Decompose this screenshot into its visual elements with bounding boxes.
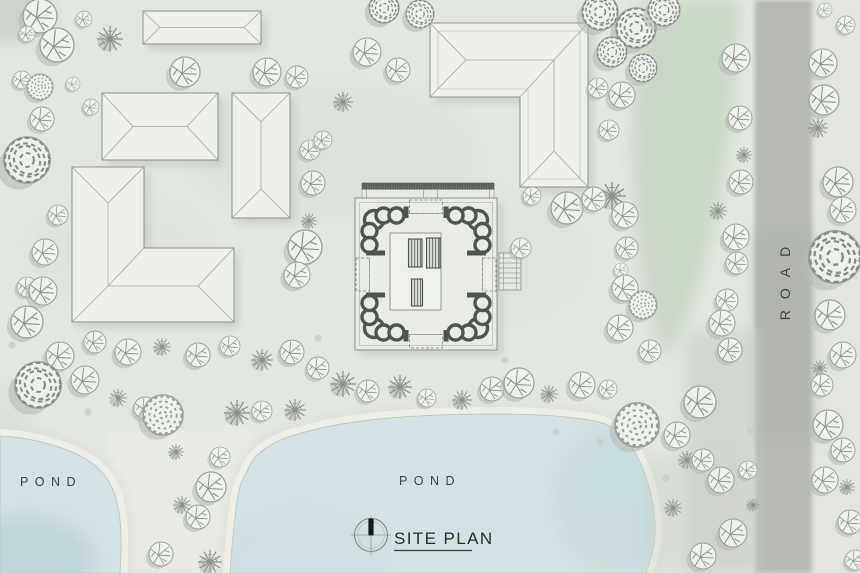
pebble-icon xyxy=(747,427,754,434)
building-north-small xyxy=(143,11,261,44)
pebble-icon xyxy=(597,439,604,446)
building-west-rect xyxy=(102,93,218,160)
pebble-icon xyxy=(9,342,16,349)
inner-room xyxy=(390,233,441,310)
pergola-band xyxy=(362,183,494,190)
site-plan-drawing: POND POND ROAD SITE PLAN xyxy=(0,0,860,573)
pebble-icon xyxy=(502,357,509,364)
road-label: ROAD xyxy=(777,236,793,320)
building-center-rect xyxy=(232,93,290,218)
pond-center-label: POND xyxy=(399,474,461,488)
pebble-icon xyxy=(315,335,322,342)
pebble-icon xyxy=(663,475,670,482)
pebble-icon xyxy=(553,429,560,436)
furniture-mat xyxy=(412,279,423,306)
pond-left-label: POND xyxy=(20,475,82,489)
page-title: SITE PLAN xyxy=(394,529,494,548)
pebble-icon xyxy=(110,397,117,404)
pebble-icon xyxy=(85,409,92,416)
pond-left xyxy=(0,436,121,573)
main-pavilion xyxy=(355,183,521,350)
furniture-mat xyxy=(409,239,423,267)
furniture-mat xyxy=(427,238,441,268)
site-plan-canvas: POND POND ROAD SITE PLAN xyxy=(0,0,860,573)
